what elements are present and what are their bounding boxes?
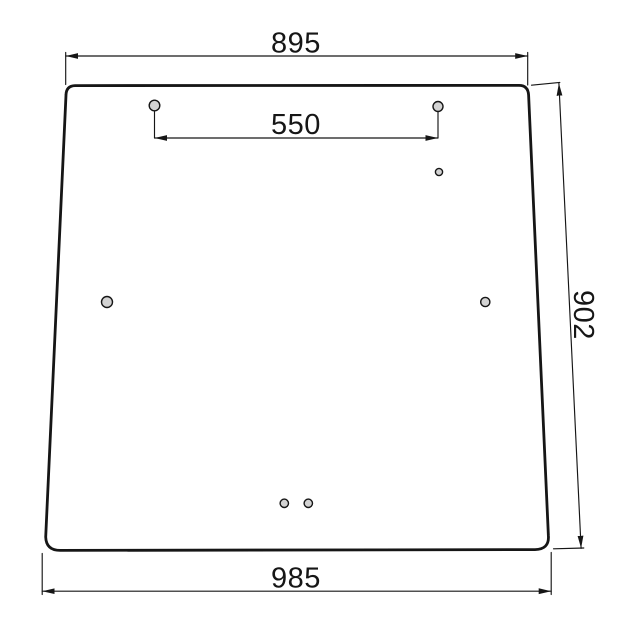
glass-outline	[46, 85, 549, 550]
dimension-label-height: 902	[567, 290, 599, 340]
hole-bottom-center-right	[304, 499, 312, 507]
dimension-label-bottom-width: 985	[271, 563, 321, 595]
dimension-top-width: 895	[66, 28, 528, 86]
dimension-hole-spacing: 550	[155, 104, 439, 142]
mounting-holes	[102, 100, 490, 507]
dimension-label-top-width: 895	[271, 28, 321, 60]
hole-middle-left	[102, 297, 113, 308]
hole-top-right	[433, 102, 443, 112]
technical-drawing-canvas: 895 550 902 985	[0, 0, 624, 633]
dimension-height: 902	[532, 82, 600, 548]
dimension-label-hole-spacing: 550	[271, 109, 321, 141]
extension-line-height-bottom	[554, 548, 584, 549]
hole-bottom-center-left	[280, 499, 288, 507]
hole-upper-right-small	[435, 168, 442, 175]
hole-top-left	[149, 100, 160, 111]
hole-middle-right	[481, 297, 490, 306]
dimension-bottom-width: 985	[42, 553, 551, 595]
glass-panel-drawing: 895 550 902 985	[0, 0, 624, 633]
extension-line-height-top	[532, 82, 560, 85]
